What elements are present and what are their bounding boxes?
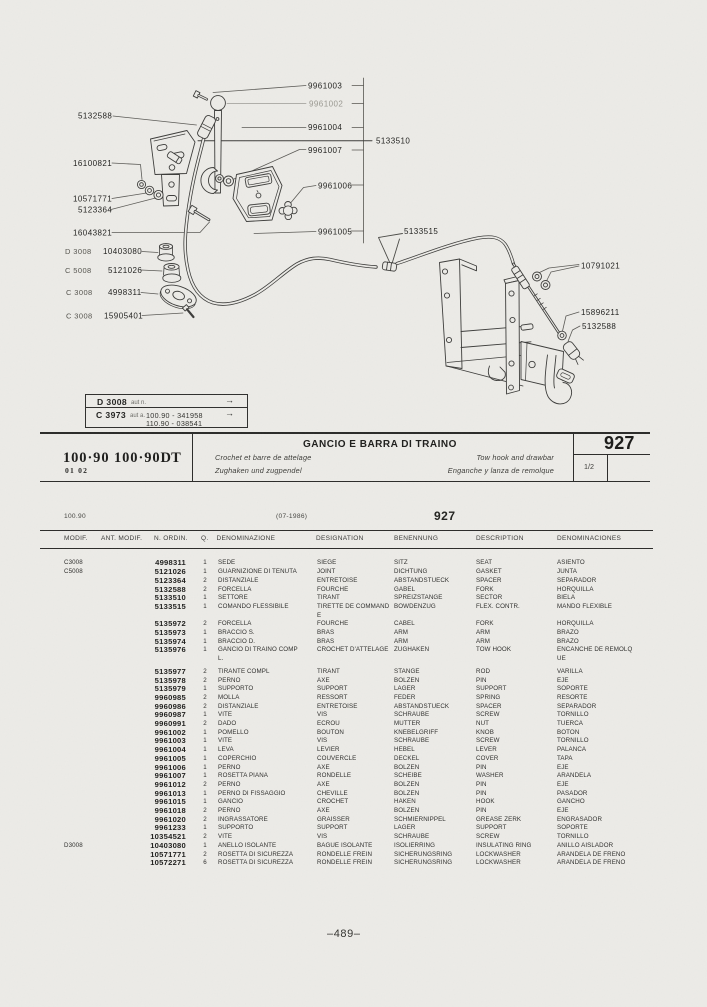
svg-text:9961002: 9961002 [309, 100, 343, 109]
svg-text:5132588: 5132588 [78, 112, 112, 121]
svg-text:C 5008: C 5008 [65, 266, 92, 275]
svg-text:15905401: 15905401 [104, 312, 143, 321]
svg-text:5133510: 5133510 [376, 137, 410, 146]
svg-text:5123364: 5123364 [78, 206, 112, 215]
svg-text:10403080: 10403080 [103, 247, 142, 256]
svg-text:16043821: 16043821 [73, 229, 112, 238]
svg-text:15896211: 15896211 [581, 308, 620, 317]
svg-text:9961004: 9961004 [308, 123, 342, 132]
svg-text:5132588: 5132588 [582, 322, 616, 331]
svg-text:16100821: 16100821 [73, 159, 112, 168]
svg-text:10791021: 10791021 [581, 262, 620, 271]
svg-text:9961007: 9961007 [308, 146, 342, 155]
svg-text:9961006: 9961006 [318, 182, 352, 191]
svg-text:C 3008: C 3008 [66, 312, 93, 321]
svg-text:4998311: 4998311 [108, 288, 142, 297]
svg-text:10571771: 10571771 [73, 195, 112, 204]
svg-text:5121026: 5121026 [108, 266, 142, 275]
svg-text:9961003: 9961003 [308, 82, 342, 91]
svg-text:5133515: 5133515 [404, 227, 438, 236]
svg-text:C 3008: C 3008 [66, 288, 93, 297]
svg-text:9961005: 9961005 [318, 228, 352, 237]
svg-text:D 3008: D 3008 [65, 247, 92, 256]
